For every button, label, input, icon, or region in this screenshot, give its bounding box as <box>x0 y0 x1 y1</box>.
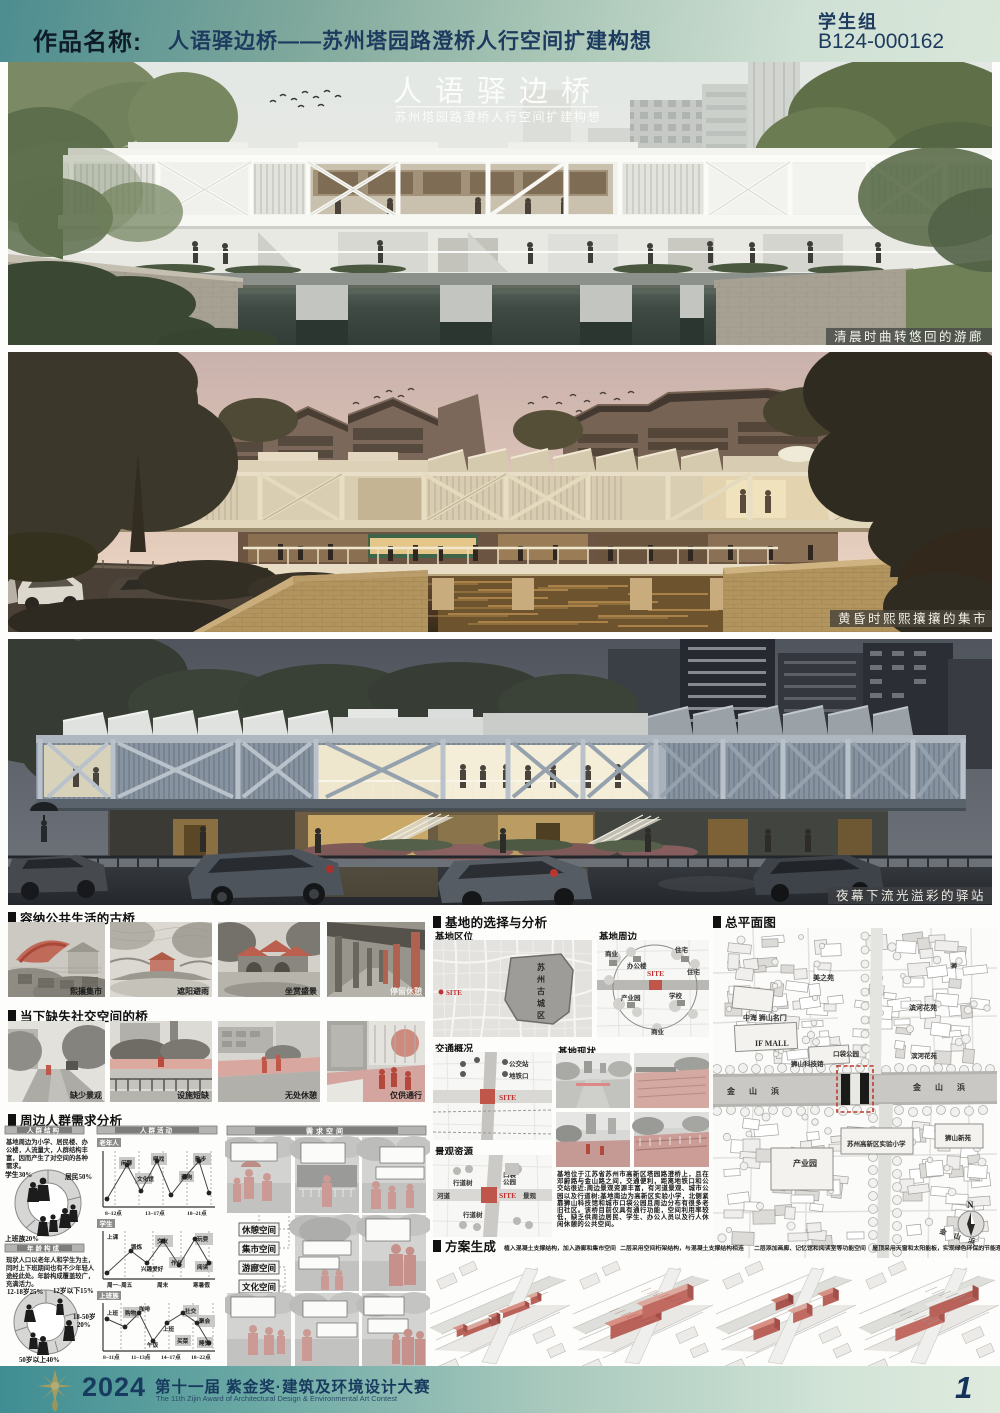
svg-text:阅读: 阅读 <box>197 1263 209 1271</box>
svg-text:同时上下班期间也有不少年轻人: 同时上下班期间也有不少年轻人 <box>6 1263 95 1272</box>
svg-text:人群结构: 人群结构 <box>27 1126 61 1135</box>
svg-text:需求空间: 需求空间 <box>306 1127 346 1136</box>
svg-text:坐赏盛景: 坐赏盛景 <box>285 986 317 996</box>
svg-text:公交站: 公交站 <box>509 1059 529 1068</box>
svg-text:人语驿边桥: 人语驿边桥 <box>393 75 603 108</box>
svg-text:14~17点: 14~17点 <box>161 1353 181 1361</box>
svg-text:狮山新苑: 狮山新苑 <box>944 1133 972 1142</box>
svg-text:狮山科技馆: 狮山科技馆 <box>790 1059 824 1068</box>
svg-text:文化馆: 文化馆 <box>137 1175 154 1183</box>
svg-text:清晨时曲转悠回的游廊: 清晨时曲转悠回的游廊 <box>834 329 984 344</box>
svg-text:寒暑假: 寒暑假 <box>192 1281 210 1289</box>
svg-text:古: 古 <box>537 986 545 996</box>
svg-text:停留休憩: 停留休憩 <box>390 986 422 996</box>
svg-text:产业园: 产业园 <box>793 1158 817 1168</box>
svg-text:办公楼: 办公楼 <box>627 961 647 970</box>
svg-text:8~11点: 8~11点 <box>103 1353 120 1361</box>
svg-text:苏州塔园路澄桥人行空间扩建构想: 苏州塔园路澄桥人行空间扩建构想 <box>394 109 601 124</box>
svg-text:商业: 商业 <box>651 1027 665 1036</box>
svg-text:行道树: 行道树 <box>452 1178 473 1187</box>
svg-text:年龄构成: 年龄构成 <box>27 1244 61 1253</box>
svg-text:咖啡: 咖啡 <box>139 1305 151 1313</box>
svg-text:上班: 上班 <box>107 1309 119 1317</box>
svg-text:植入混凝土支撑结构，加入游廊和集市空间: 植入混凝土支撑结构，加入游廊和集市空间 <box>504 1244 616 1252</box>
svg-text:公园: 公园 <box>503 1177 517 1186</box>
svg-text:夜幕下流光溢彩的驿站: 夜幕下流光溢彩的驿站 <box>836 888 986 903</box>
svg-text:需求。: 需求。 <box>6 1161 25 1170</box>
svg-text:滨河花苑: 滨河花苑 <box>911 1051 938 1060</box>
svg-text:11~13点: 11~13点 <box>131 1353 151 1361</box>
svg-text:缺少景观: 缺少景观 <box>69 1090 102 1100</box>
svg-text:美之苑: 美之苑 <box>813 973 834 982</box>
svg-text:河道: 河道 <box>437 1191 451 1200</box>
svg-text:睡觉: 睡觉 <box>199 1339 211 1347</box>
svg-text:公楼，人流量大，人群结构丰: 公楼，人流量大，人群结构丰 <box>6 1145 89 1154</box>
svg-text:玩耍: 玩耍 <box>197 1235 209 1243</box>
svg-text:无处休憩: 无处休憩 <box>284 1090 317 1100</box>
svg-text:唱戏: 唱戏 <box>153 1155 165 1163</box>
svg-text:13~17点: 13~17点 <box>145 1209 165 1217</box>
svg-text:熙攘集市: 熙攘集市 <box>70 986 102 996</box>
svg-text:兴趣爱好: 兴趣爱好 <box>141 1265 164 1273</box>
svg-text:城: 城 <box>537 998 545 1008</box>
svg-text:休憩空间: 休憩空间 <box>241 1225 276 1235</box>
svg-text:买菜: 买菜 <box>177 1337 189 1345</box>
svg-text:50岁以上40%: 50岁以上40% <box>19 1355 60 1364</box>
svg-text:上班: 上班 <box>163 1325 175 1333</box>
svg-text:闲聊: 闲聊 <box>121 1159 133 1167</box>
svg-text:狮: 狮 <box>950 962 957 970</box>
svg-text:老年人: 老年人 <box>98 1138 119 1147</box>
svg-text:N: N <box>967 1200 974 1210</box>
svg-text:聚会: 聚会 <box>198 1317 211 1325</box>
svg-text:18~21点: 18~21点 <box>187 1209 207 1217</box>
svg-text:仅供通行: 仅供通行 <box>389 1090 422 1100</box>
svg-text:学生30%: 学生30% <box>5 1170 32 1179</box>
svg-text:SITE: SITE <box>499 1191 516 1200</box>
svg-text:设施短缺: 设施短缺 <box>177 1090 210 1100</box>
svg-text:住宅: 住宅 <box>687 967 701 976</box>
svg-text:遛狗: 遛狗 <box>180 1173 193 1181</box>
svg-text:散步: 散步 <box>195 1155 207 1163</box>
svg-text:充满活力。: 充满活力。 <box>6 1279 37 1288</box>
svg-text:二层采用空间桁架结构，与混凝土支撑结构相连: 二层采用空间桁架结构，与混凝土支撑结构相连 <box>620 1244 744 1252</box>
svg-text:州: 州 <box>536 975 545 984</box>
svg-text:社交: 社交 <box>184 1307 197 1315</box>
svg-text:上班族20%: 上班族20% <box>5 1234 39 1243</box>
svg-text:18-50岁: 18-50岁 <box>73 1312 95 1321</box>
svg-text:周末: 周末 <box>157 1281 169 1289</box>
svg-text:人群活动: 人群活动 <box>140 1126 174 1135</box>
svg-text:富，因而产生了对空间的各种: 富，因而产生了对空间的各种 <box>6 1153 89 1162</box>
svg-text:午饭: 午饭 <box>147 1341 159 1349</box>
svg-text:文化空间: 文化空间 <box>242 1282 276 1292</box>
svg-text:游廊空间: 游廊空间 <box>242 1263 276 1273</box>
svg-text:集市空间: 集市空间 <box>241 1244 276 1254</box>
svg-text:途经此处。年龄构成覆盖较广，: 途经此处。年龄构成覆盖较广， <box>6 1271 94 1280</box>
svg-text:IF MALL: IF MALL <box>755 1039 789 1048</box>
svg-text:居民50%: 居民50% <box>65 1173 92 1181</box>
svg-text:学校: 学校 <box>669 991 683 1000</box>
svg-text:中海 狮山名门: 中海 狮山名门 <box>743 1013 787 1022</box>
svg-text:18~22点: 18~22点 <box>191 1353 211 1361</box>
svg-text:现状人口以老年人和学生为主，: 现状人口以老年人和学生为主， <box>6 1255 94 1264</box>
svg-text:12-18岁25%: 12-18岁25% <box>7 1287 43 1296</box>
svg-text:二层添加画廊、记忆馆和阅读室等功能空间: 二层添加画廊、记忆馆和阅读室等功能空间 <box>754 1244 866 1252</box>
svg-text:金山浜: 金山浜 <box>912 1082 979 1092</box>
svg-text:SITE: SITE <box>446 989 462 997</box>
svg-text:区: 区 <box>537 1011 545 1020</box>
svg-text:遮阳避雨: 遮阳避雨 <box>177 986 209 996</box>
svg-text:商业: 商业 <box>605 949 619 958</box>
svg-text:景观: 景观 <box>523 1191 537 1200</box>
svg-text:作业: 作业 <box>171 1259 183 1267</box>
svg-text:12岁以下15%: 12岁以下15% <box>53 1286 94 1295</box>
svg-text:黄昏时熙熙攘攘的集市: 黄昏时熙熙攘攘的集市 <box>838 611 988 626</box>
svg-text:SITE: SITE <box>647 969 664 978</box>
svg-text:产业园: 产业园 <box>621 993 641 1002</box>
svg-text:上班族: 上班族 <box>99 1291 119 1300</box>
svg-text:住宅: 住宅 <box>675 945 689 954</box>
svg-text:屋顶采用天窗和太阳能板，实现绿色环保的节能理念: 屋顶采用天窗和太阳能板，实现绿色环保的节能理念 <box>872 1244 1000 1252</box>
svg-text:口袋公园: 口袋公园 <box>833 1049 860 1058</box>
svg-text:金山浜: 金山浜 <box>726 1086 793 1096</box>
svg-text:地铁口: 地铁口 <box>509 1071 529 1080</box>
svg-text:滨河花苑: 滨河花苑 <box>909 1003 937 1012</box>
svg-text:周一~周五: 周一~周五 <box>107 1281 133 1289</box>
svg-text:苏: 苏 <box>537 962 545 972</box>
svg-text:购物: 购物 <box>125 1309 137 1317</box>
svg-text:基地周边为小学、居民楼、办: 基地周边为小学、居民楼、办 <box>5 1137 89 1146</box>
svg-text:交友: 交友 <box>157 1237 169 1245</box>
svg-text:上课: 上课 <box>107 1233 119 1241</box>
svg-text:SITE: SITE <box>499 1093 516 1102</box>
svg-text:行道树: 行道树 <box>462 1210 483 1219</box>
svg-text:8~12点: 8~12点 <box>105 1209 122 1217</box>
svg-text:学生: 学生 <box>100 1219 114 1228</box>
svg-text:苏州高新区实验小学: 苏州高新区实验小学 <box>847 1139 906 1148</box>
svg-text:20%: 20% <box>77 1322 91 1329</box>
svg-text:锻炼: 锻炼 <box>131 1243 143 1251</box>
